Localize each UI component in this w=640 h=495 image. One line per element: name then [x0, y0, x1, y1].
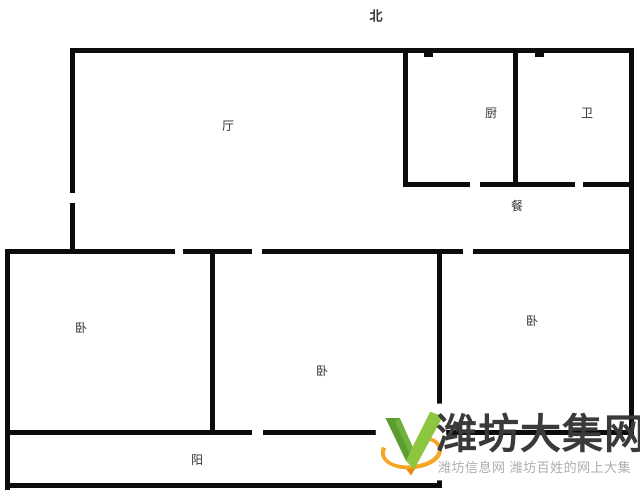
wall-right-outer	[629, 48, 634, 435]
wall-kitchen-bath-divider	[513, 52, 518, 187]
wall-kitchen-dining-b	[480, 182, 575, 187]
room-label-living: 厅	[222, 120, 234, 132]
room-label-bedroom-left: 卧	[75, 322, 87, 334]
wall-mid-b	[183, 249, 252, 254]
wall-kitchen-dining-a	[403, 182, 470, 187]
room-label-dining: 餐	[511, 200, 523, 212]
wall-mid-a	[8, 249, 175, 254]
room-label-bathroom: 卫	[581, 107, 593, 119]
wall-mid-c	[262, 249, 463, 254]
watermark-tagline-text: 潍坊信息网 潍坊百姓的网上大集	[438, 461, 631, 474]
wall-kitchen-left	[403, 52, 408, 187]
room-label-balcony: 阳	[191, 454, 203, 466]
wall-top-outer	[70, 48, 634, 53]
wall-flue-tick-bath	[535, 53, 544, 57]
watermark-brand-text: 潍坊大集网	[436, 414, 640, 455]
wall-bedroom-bottom-a	[8, 430, 252, 435]
wall-left-upper-b	[70, 203, 75, 254]
wall-balcony-bottom	[5, 483, 442, 488]
wall-flue-tick-kitchen	[424, 53, 433, 57]
wall-bedroom-divider	[210, 249, 215, 435]
compass-north-label: 北	[369, 10, 382, 23]
wall-mid-d	[473, 249, 634, 254]
room-label-kitchen: 厨	[485, 107, 497, 119]
room-label-bedroom-right: 卧	[526, 315, 538, 327]
wall-left-lower	[5, 249, 10, 490]
wall-left-upper-a	[70, 48, 75, 193]
room-label-bedroom-middle: 卧	[316, 365, 328, 377]
wall-kitchen-dining-c	[583, 182, 634, 187]
floorplan-canvas: 北 厅厨卫餐卧卧卧阳 潍坊大集网 潍坊信息网 潍坊百姓的网上大集	[0, 0, 640, 495]
